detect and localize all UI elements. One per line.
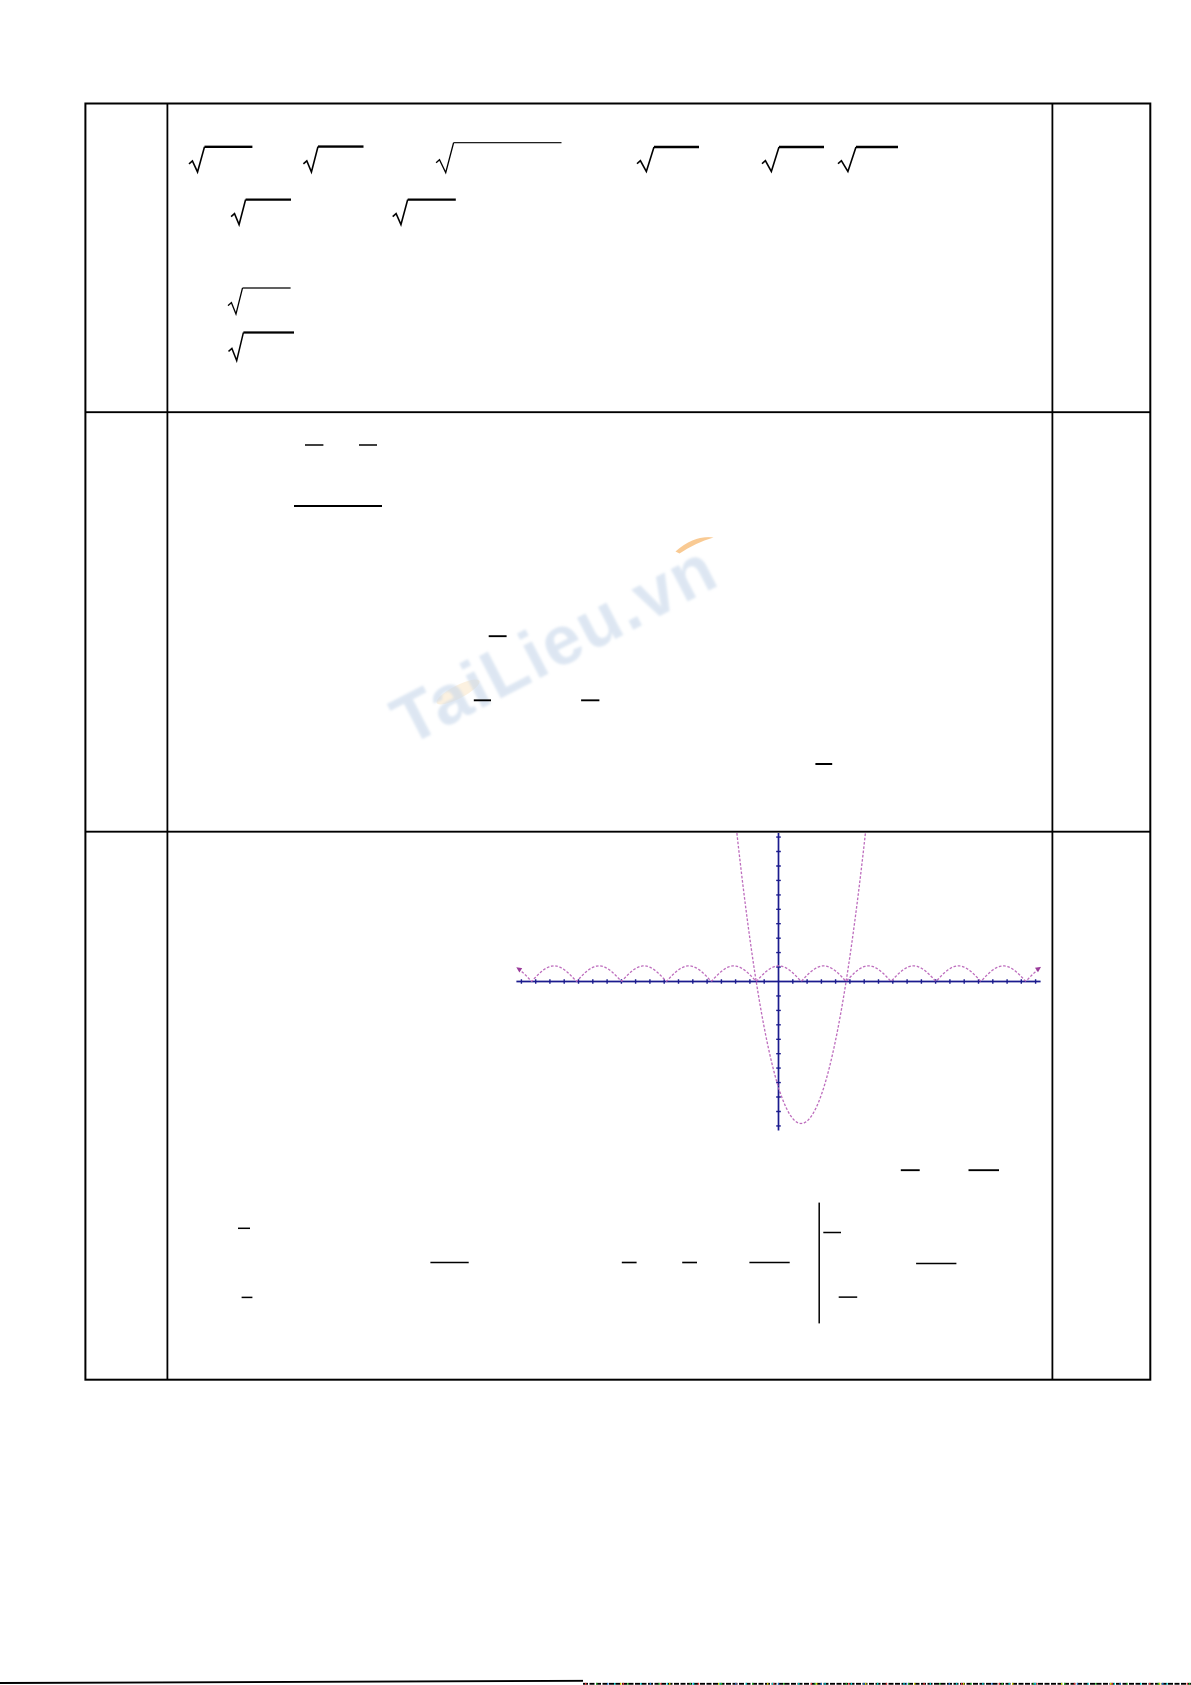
svg-text:TaiLieu.vn: TaiLieu.vn bbox=[379, 528, 729, 759]
